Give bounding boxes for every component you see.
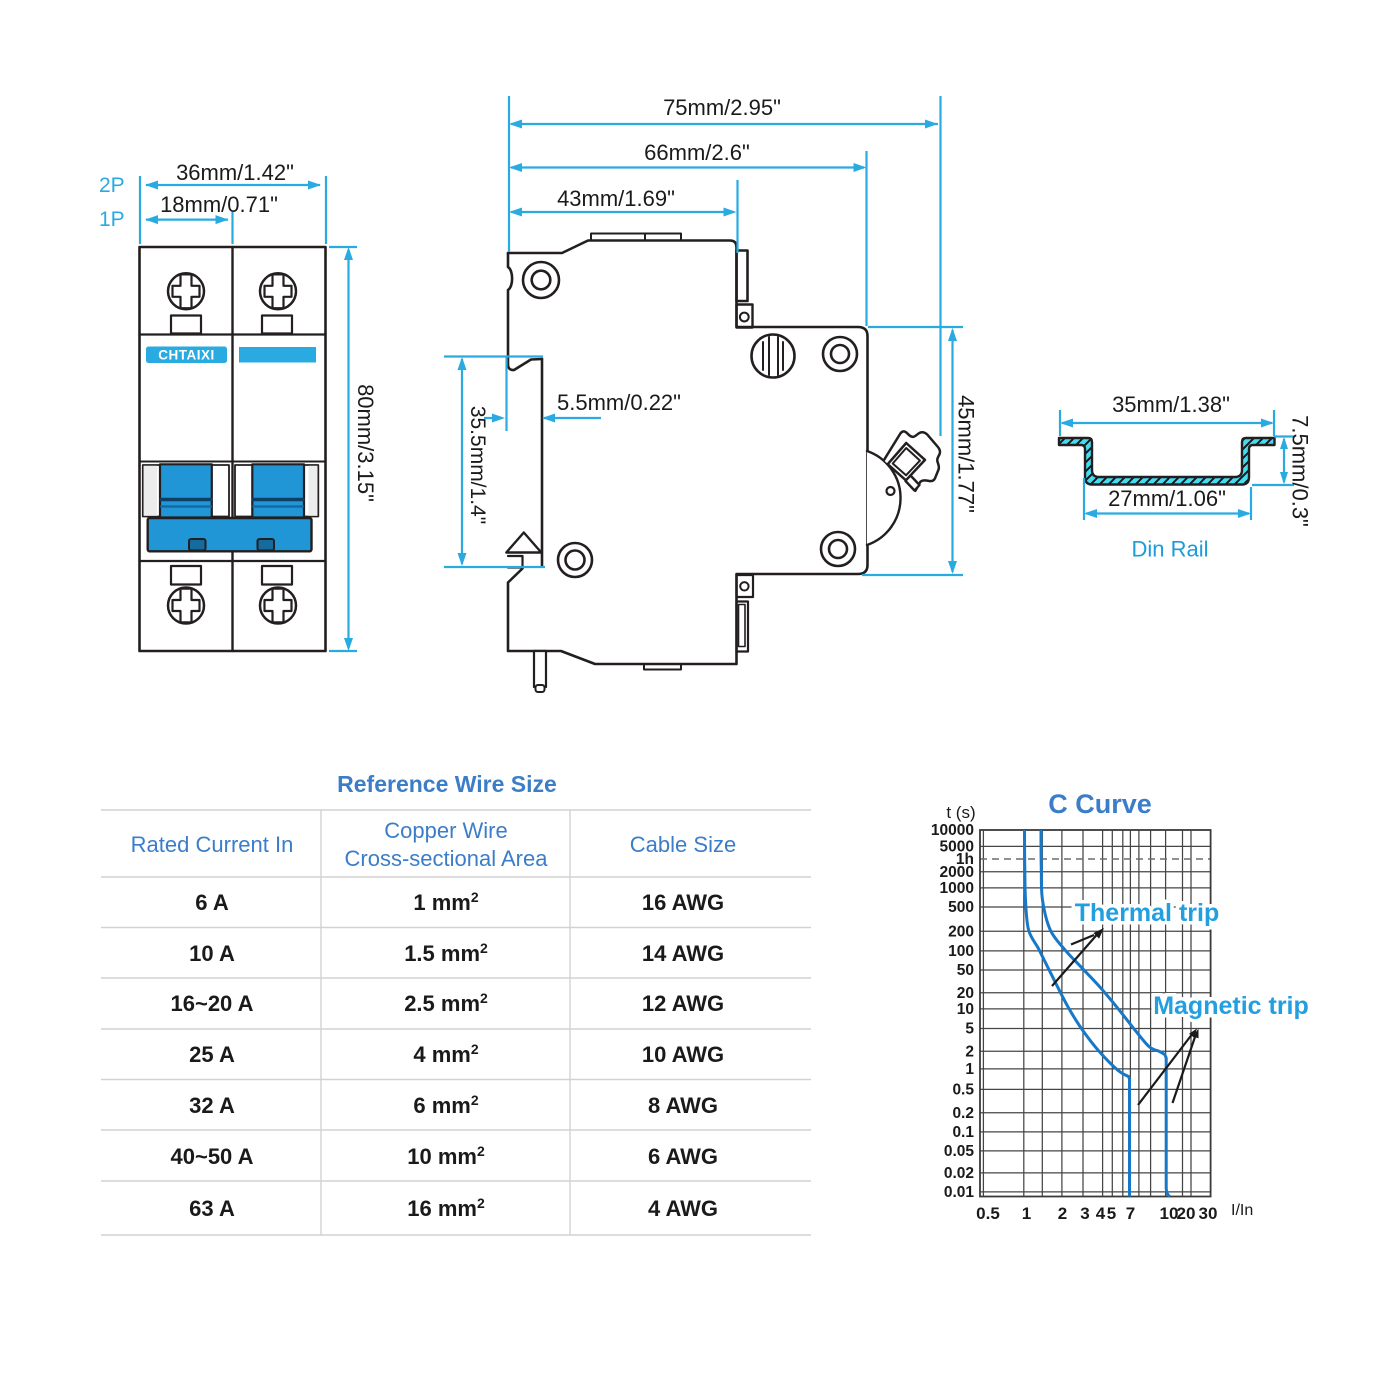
- svg-text:1 mm2: 1 mm2: [413, 889, 478, 915]
- svg-text:18mm/0.71": 18mm/0.71": [160, 192, 278, 217]
- svg-text:75mm/2.95": 75mm/2.95": [663, 95, 781, 120]
- svg-text:27mm/1.06": 27mm/1.06": [1108, 486, 1226, 511]
- svg-text:Magnetic trip: Magnetic trip: [1153, 992, 1309, 1020]
- svg-text:1000: 1000: [940, 880, 974, 897]
- svg-text:25 A: 25 A: [189, 1042, 235, 1067]
- svg-text:I/In: I/In: [1231, 1202, 1253, 1219]
- svg-text:Din Rail: Din Rail: [1131, 537, 1208, 562]
- svg-text:2: 2: [1058, 1204, 1067, 1223]
- svg-text:66mm/2.6": 66mm/2.6": [644, 140, 750, 165]
- svg-text:80mm/3.15": 80mm/3.15": [353, 384, 378, 502]
- svg-text:35mm/1.38": 35mm/1.38": [1112, 392, 1230, 417]
- svg-text:10 mm2: 10 mm2: [407, 1143, 485, 1169]
- svg-text:5.5mm/0.22": 5.5mm/0.22": [557, 390, 681, 415]
- svg-text:7: 7: [1126, 1204, 1135, 1223]
- svg-text:0.05: 0.05: [944, 1143, 975, 1160]
- svg-text:4: 4: [1096, 1204, 1106, 1223]
- svg-text:5: 5: [1107, 1204, 1116, 1223]
- svg-text:1P: 1P: [99, 208, 125, 231]
- svg-text:16 AWG: 16 AWG: [642, 890, 724, 915]
- svg-text:Cross-sectional Area: Cross-sectional Area: [345, 846, 549, 871]
- svg-text:6 mm2: 6 mm2: [413, 1092, 478, 1118]
- svg-text:7.5mm/0.3": 7.5mm/0.3": [1288, 415, 1313, 527]
- svg-text:20: 20: [1177, 1204, 1196, 1223]
- svg-text:CHTAIXI: CHTAIXI: [158, 348, 215, 363]
- svg-text:2: 2: [965, 1043, 974, 1060]
- svg-text:Copper Wire: Copper Wire: [384, 818, 507, 843]
- svg-text:6 AWG: 6 AWG: [648, 1144, 718, 1169]
- svg-text:10 A: 10 A: [189, 941, 235, 966]
- svg-text:35.5mm/1.4": 35.5mm/1.4": [466, 406, 489, 524]
- svg-text:12 AWG: 12 AWG: [642, 991, 724, 1016]
- svg-text:1: 1: [1022, 1204, 1031, 1223]
- svg-text:63 A: 63 A: [189, 1196, 235, 1221]
- svg-text:500: 500: [948, 899, 974, 916]
- svg-text:0.5: 0.5: [976, 1204, 1000, 1223]
- svg-text:100: 100: [948, 943, 974, 960]
- svg-text:0.01: 0.01: [944, 1184, 975, 1201]
- svg-text:0.02: 0.02: [944, 1165, 974, 1182]
- svg-text:8 AWG: 8 AWG: [648, 1093, 718, 1118]
- svg-text:0.2: 0.2: [952, 1105, 974, 1122]
- svg-text:4 mm2: 4 mm2: [413, 1041, 478, 1067]
- svg-text:10: 10: [957, 1001, 974, 1018]
- svg-text:36mm/1.42": 36mm/1.42": [176, 160, 294, 185]
- svg-text:16~20 A: 16~20 A: [171, 991, 254, 1016]
- svg-text:3: 3: [1080, 1204, 1089, 1223]
- svg-text:10000: 10000: [931, 822, 974, 839]
- svg-text:30: 30: [1199, 1204, 1218, 1223]
- svg-text:Thermal trip: Thermal trip: [1075, 899, 1219, 927]
- svg-text:43mm/1.69": 43mm/1.69": [557, 186, 675, 211]
- svg-text:50: 50: [957, 962, 974, 979]
- svg-text:20: 20: [957, 985, 974, 1002]
- svg-text:Cable Size: Cable Size: [630, 832, 736, 857]
- svg-text:1: 1: [965, 1061, 974, 1078]
- svg-text:0.1: 0.1: [952, 1124, 974, 1141]
- svg-text:Rated Current In: Rated Current In: [131, 832, 294, 857]
- svg-text:t (s): t (s): [946, 803, 975, 822]
- svg-text:C Curve: C Curve: [1048, 789, 1152, 819]
- svg-text:1.5 mm2: 1.5 mm2: [404, 940, 488, 966]
- svg-text:14 AWG: 14 AWG: [642, 941, 724, 966]
- svg-text:Reference Wire Size: Reference Wire Size: [337, 771, 557, 797]
- svg-text:40~50 A: 40~50 A: [171, 1144, 254, 1169]
- svg-text:2000: 2000: [940, 864, 974, 881]
- svg-text:0.5: 0.5: [952, 1081, 974, 1098]
- svg-text:5: 5: [965, 1021, 974, 1038]
- svg-text:2P: 2P: [99, 174, 125, 197]
- svg-text:6 A: 6 A: [195, 890, 229, 915]
- svg-text:32 A: 32 A: [189, 1093, 235, 1118]
- svg-text:200: 200: [948, 923, 974, 940]
- svg-text:10 AWG: 10 AWG: [642, 1042, 724, 1067]
- svg-text:45mm/1.77": 45mm/1.77": [954, 395, 979, 513]
- svg-text:2.5 mm2: 2.5 mm2: [404, 990, 488, 1016]
- svg-text:4 AWG: 4 AWG: [648, 1196, 718, 1221]
- svg-text:16 mm2: 16 mm2: [407, 1195, 485, 1221]
